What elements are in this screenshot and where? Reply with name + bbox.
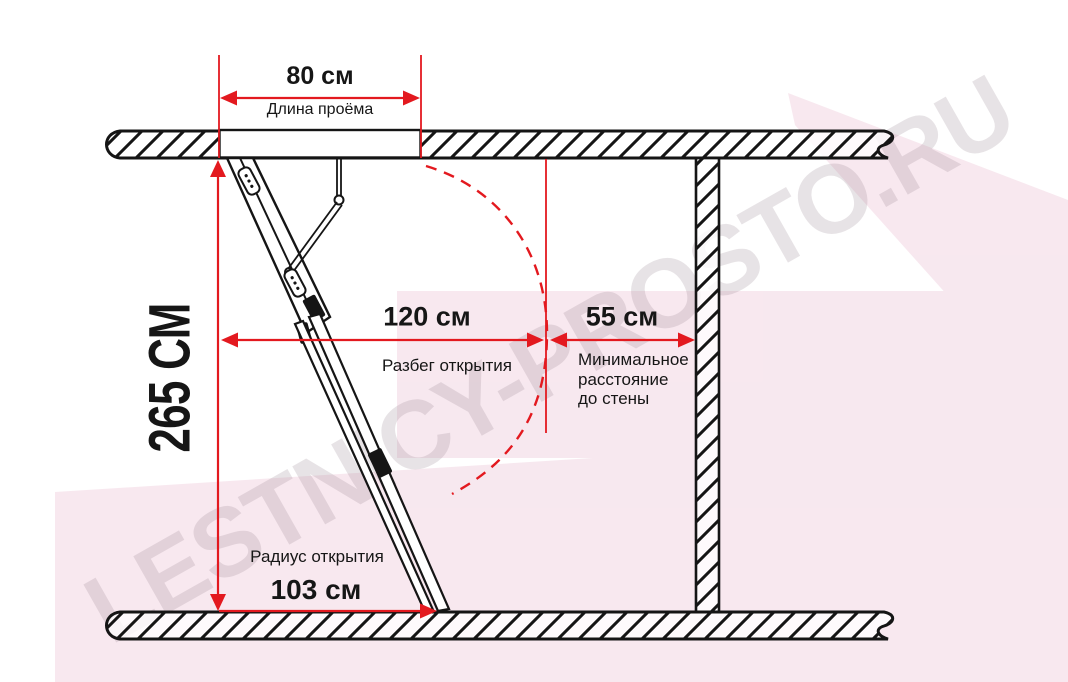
- dim-opening-run-value: 120 см: [383, 302, 471, 333]
- dim-wall-distance-label-line2: расстояние: [578, 370, 689, 390]
- dim-265-arrowhead-top: [210, 160, 226, 177]
- dim-wall-distance-value: 55 см: [586, 302, 659, 333]
- dim-wall-distance-label-line3: до стены: [578, 389, 689, 409]
- dim-opening-length-label: Длина проёма: [219, 101, 421, 119]
- floor: [107, 612, 893, 639]
- dim-opening-length-value: 80 см: [219, 62, 421, 91]
- dim-120-arrowhead-left: [221, 333, 238, 348]
- wall: [696, 158, 719, 612]
- attic-ladder-dimension-diagram: LESTNICY-PROSTO.RU: [0, 0, 1068, 682]
- dim-ceiling-height-value: 265 СМ: [137, 303, 204, 452]
- dim-opening-radius-label: Радиус открытия: [250, 547, 384, 567]
- dim-opening-run-label: Разбег открытия: [382, 356, 512, 376]
- dim-opening-radius-value: 103 см: [271, 574, 362, 606]
- ladder-strut-2: [293, 205, 342, 272]
- dim-wall-distance-label: Минимальное расстояние до стены: [578, 350, 689, 409]
- ladder-strut: [288, 202, 337, 269]
- dim-wall-distance-label-line1: Минимальное: [578, 350, 689, 370]
- hatch-opening-box: [220, 130, 421, 158]
